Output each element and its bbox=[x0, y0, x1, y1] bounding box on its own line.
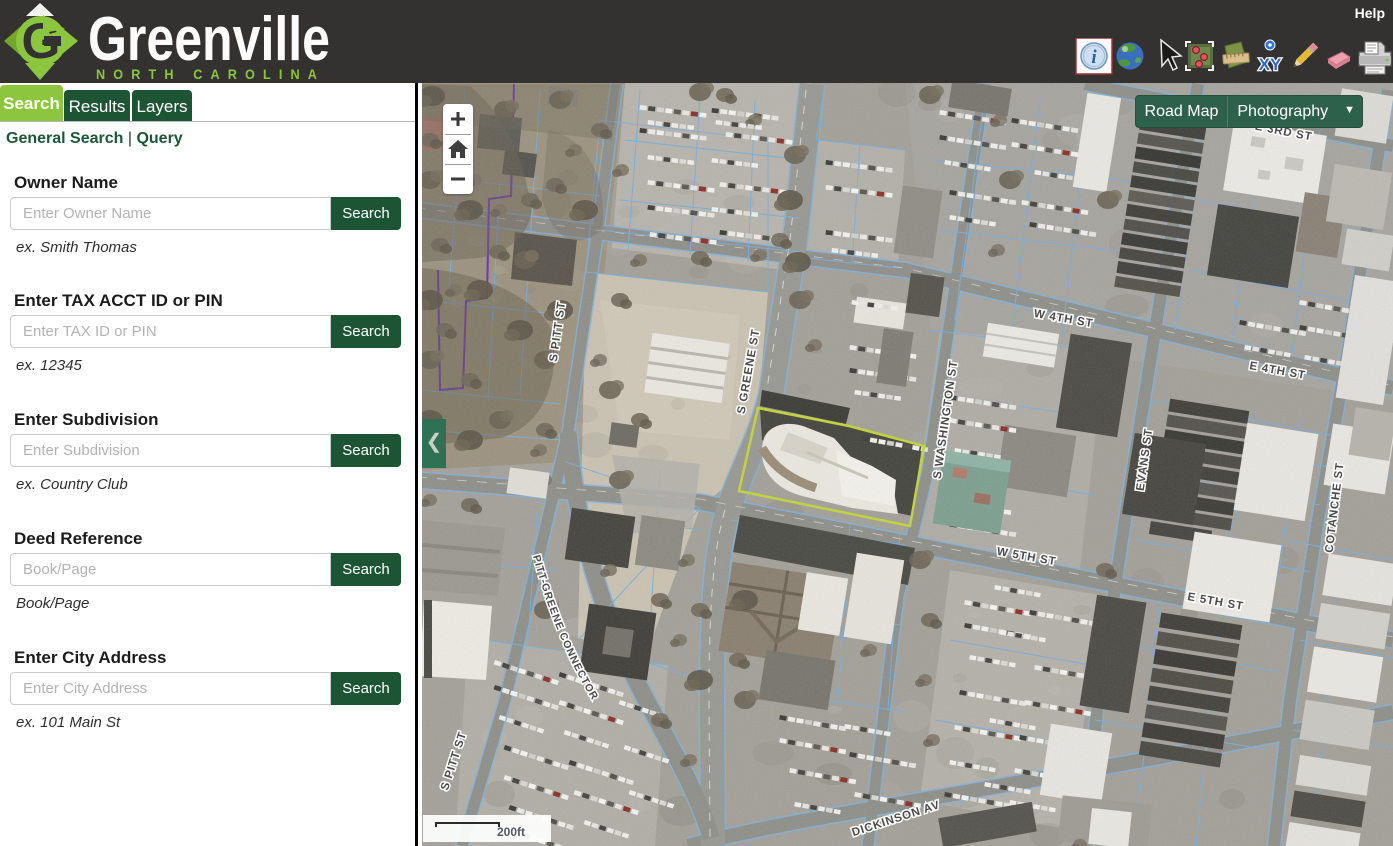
svg-text:NORTH CAROLINA: NORTH CAROLINA bbox=[96, 66, 325, 82]
svg-text:i: i bbox=[1091, 47, 1097, 68]
svg-text:XY: XY bbox=[1259, 55, 1282, 74]
svg-text:Greenville: Greenville bbox=[88, 5, 330, 74]
